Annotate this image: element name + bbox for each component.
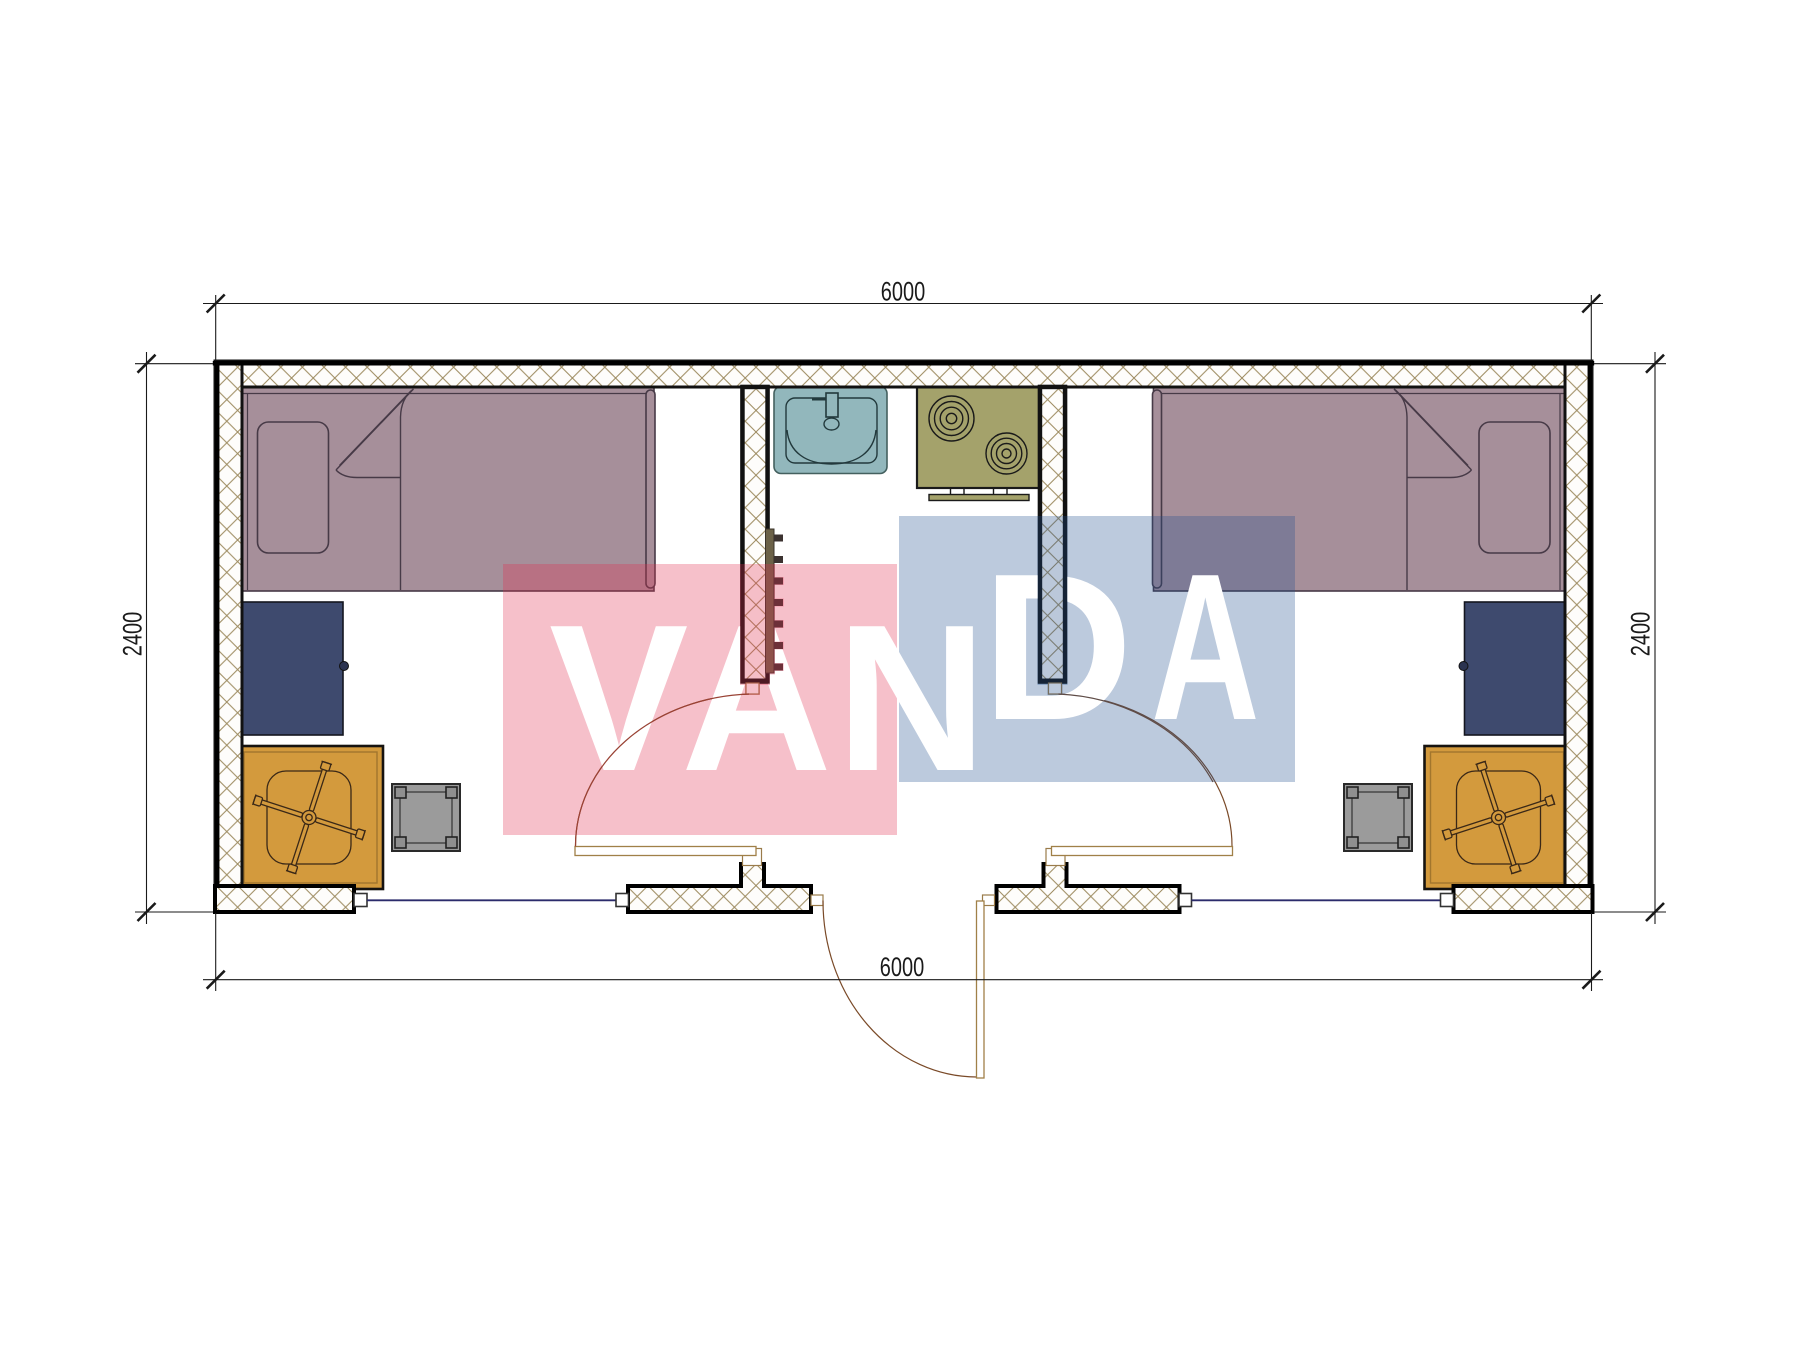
svg-text:6000: 6000 [881, 277, 925, 308]
svg-text:6000: 6000 [880, 952, 924, 983]
svg-text:2400: 2400 [1626, 612, 1657, 656]
svg-text:V: V [549, 582, 688, 815]
svg-text:A: A [1151, 530, 1260, 764]
svg-text:N: N [836, 582, 987, 815]
svg-text:2400: 2400 [118, 612, 149, 656]
